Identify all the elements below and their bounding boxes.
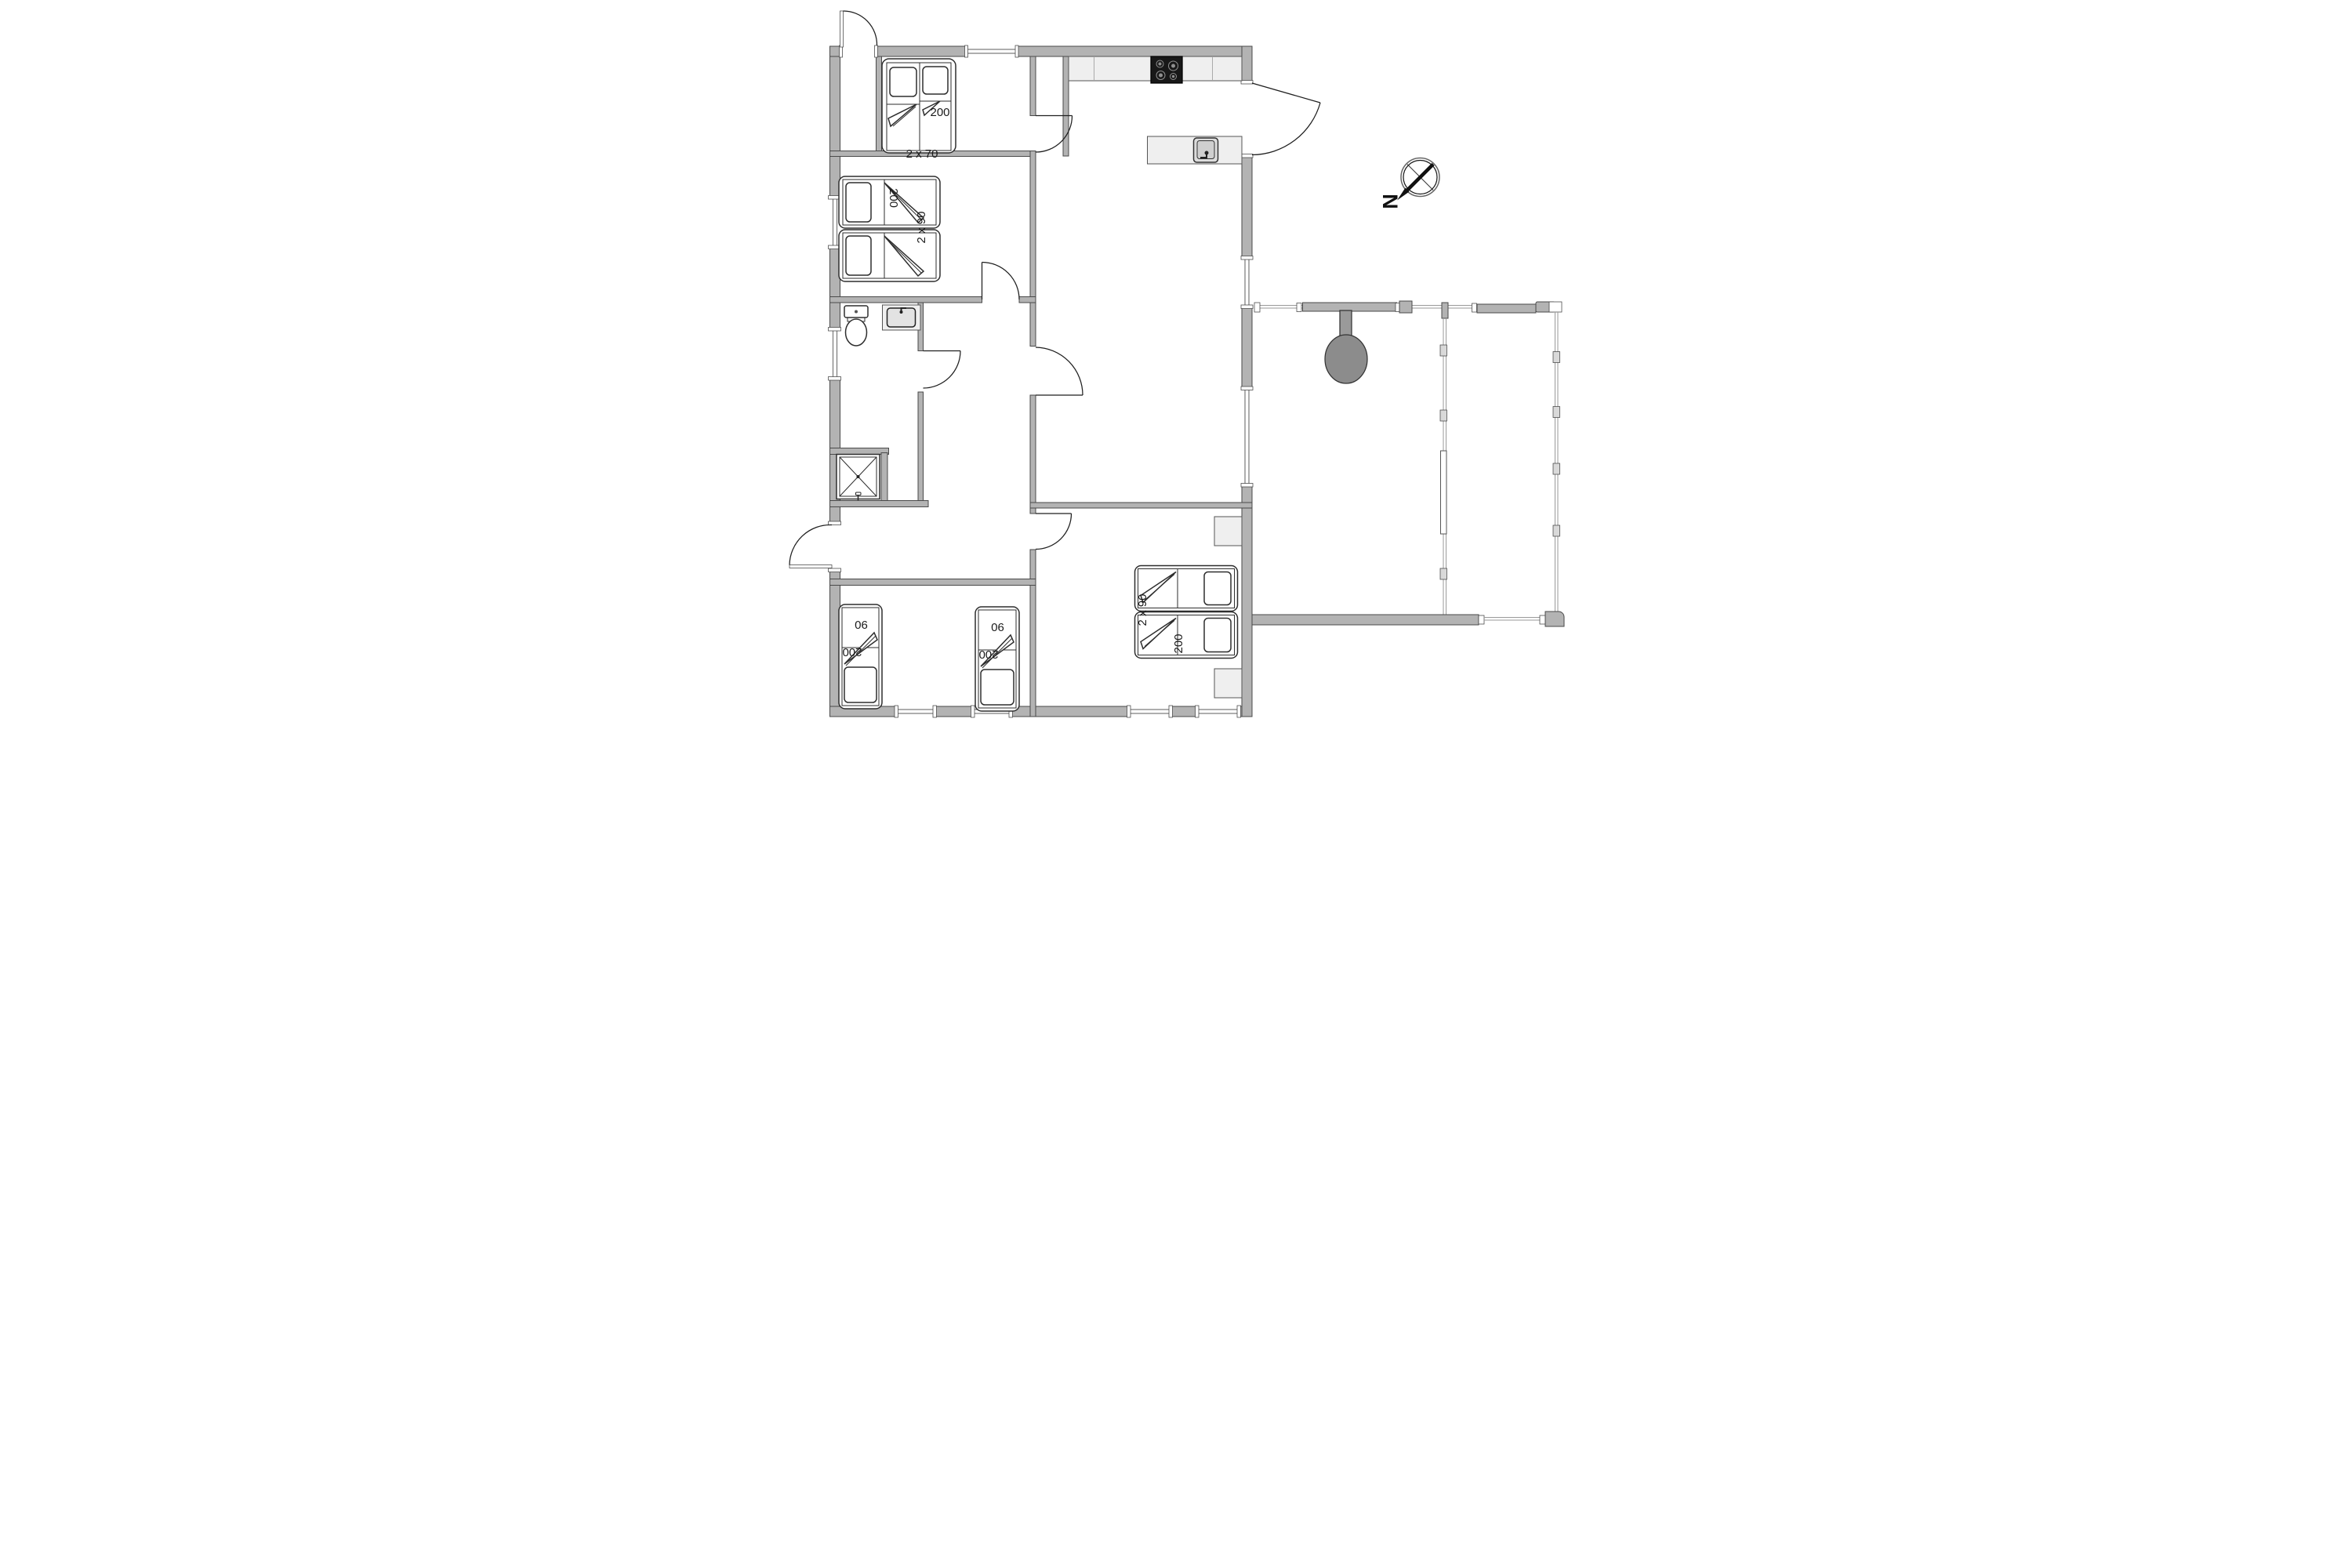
bed-double-top-left: 200 2 x 70: [882, 59, 956, 161]
window-west-bathroom: [833, 330, 837, 378]
pillow: [981, 670, 1014, 705]
fence-post: [1399, 301, 1412, 313]
bathroom: [837, 305, 920, 500]
bed-single-a: 90 200: [839, 604, 882, 709]
window-west-bedroom: [833, 198, 837, 246]
gate: [1441, 451, 1447, 534]
pillow: [923, 67, 948, 94]
kitchen-island: [1148, 136, 1243, 164]
bed-length-label: 200: [930, 106, 949, 119]
bed-twin-left: 200 2 x 90: [839, 176, 940, 281]
compass-rose: N: [1378, 158, 1439, 209]
living-room-door: [1036, 347, 1083, 395]
pillow: [890, 67, 916, 96]
pillow: [1204, 572, 1231, 605]
pillow: [844, 667, 877, 702]
bed-length-label: 200: [978, 648, 998, 661]
shower: [837, 455, 880, 501]
floor-plan-page: 200 2 x 70 200 2 x 90 90 200 9: [588, 0, 1764, 784]
island-sink: [1194, 138, 1218, 162]
window-east-living: [1245, 259, 1249, 306]
washbasin: [883, 305, 921, 330]
bed-width-label: 90: [855, 618, 868, 631]
terrace-railing: [1252, 301, 1564, 626]
bed-length-label: 200: [887, 188, 900, 208]
bed-width-label: 2 x 70: [906, 147, 938, 161]
bed-twin-bottom: 2 x 90 200: [1135, 517, 1243, 698]
wardrobe: [1214, 669, 1242, 698]
toilet: [844, 306, 868, 346]
bed-width-label: 2 x 90: [1136, 594, 1149, 626]
cooktop: [1151, 56, 1182, 83]
pillow: [1204, 619, 1231, 652]
bed-width-label: 90: [991, 620, 1004, 633]
bed-length-label: 200: [842, 645, 862, 659]
bed-width-label: 2 x 90: [915, 212, 928, 244]
kitchen: [1069, 56, 1242, 164]
sliding-door-east: [1245, 388, 1249, 485]
pillow: [846, 183, 871, 222]
hall-exterior-door: [789, 524, 832, 568]
entrance-door: [840, 11, 877, 47]
terrace-door: [1252, 83, 1320, 155]
bed-length-label: 200: [1172, 633, 1185, 653]
bottom-bedroom-door: [1036, 514, 1072, 550]
floor-plan: 200 2 x 70 200 2 x 90 90 200 9: [588, 0, 1764, 784]
north-label: N: [1378, 194, 1402, 209]
grill: [1325, 310, 1367, 383]
north-arrow: [1406, 165, 1434, 193]
wardrobe: [1214, 517, 1242, 546]
window-top: [967, 49, 1017, 53]
pillow: [846, 236, 871, 275]
bed-single-b: 90 200: [975, 607, 1019, 711]
bedroom2-door: [982, 263, 1020, 300]
railing-corner: [1545, 612, 1564, 626]
bathroom-door: [924, 351, 961, 389]
